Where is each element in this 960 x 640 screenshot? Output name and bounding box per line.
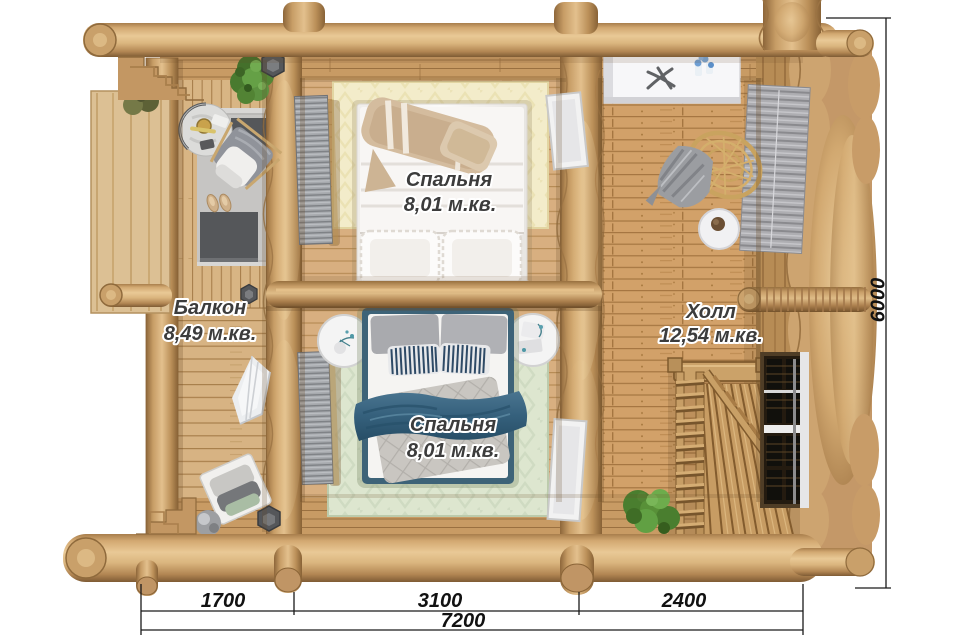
svg-text:7200: 7200 — [441, 610, 486, 632]
svg-text:6000: 6000 — [867, 278, 889, 323]
svg-text:Спальня: Спальня — [406, 169, 492, 191]
svg-text:Балкон: Балкон — [174, 297, 246, 319]
svg-text:3100: 3100 — [418, 590, 463, 612]
svg-text:8,49 м.кв.: 8,49 м.кв. — [164, 323, 257, 345]
svg-text:Спальня: Спальня — [410, 414, 496, 436]
svg-text:Холл: Холл — [685, 301, 736, 323]
svg-text:12,54 м.кв.: 12,54 м.кв. — [659, 325, 763, 347]
svg-text:1700: 1700 — [201, 590, 246, 612]
svg-text:8,01 м.кв.: 8,01 м.кв. — [404, 194, 497, 216]
svg-text:8,01 м.кв.: 8,01 м.кв. — [407, 440, 500, 462]
svg-text:2400: 2400 — [661, 590, 707, 612]
